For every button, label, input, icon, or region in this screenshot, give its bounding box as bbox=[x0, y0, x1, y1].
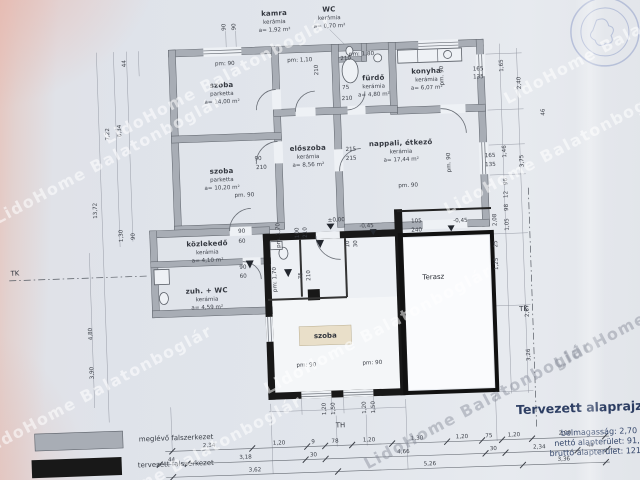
floor-plan-drawing: kamra kerámia a= 1,92 m² WC kerámia a= 0… bbox=[0, 0, 640, 480]
dim: 1,20 bbox=[456, 434, 469, 440]
room-name: szoba bbox=[210, 81, 234, 90]
room-floor: kerámia bbox=[415, 76, 438, 84]
dim: 105 bbox=[411, 218, 422, 224]
room-area: a= 4,10 m² bbox=[192, 256, 224, 264]
dim: 9 bbox=[311, 439, 315, 445]
pm-label: pm. 90 bbox=[446, 152, 453, 172]
dim: 3,90 bbox=[89, 366, 95, 379]
dim: 90 bbox=[239, 265, 247, 271]
dim: 75 bbox=[342, 85, 350, 91]
dim: 3,18 bbox=[239, 455, 252, 461]
dim: 1,50 bbox=[331, 402, 337, 415]
dim: 1,20 bbox=[363, 437, 376, 443]
dim: 98 bbox=[504, 203, 510, 211]
dim: 210 bbox=[340, 56, 351, 62]
dim: 4,66 bbox=[397, 449, 410, 455]
tk-marker: TK bbox=[518, 305, 528, 313]
room-name: közlekedő bbox=[186, 238, 228, 248]
bottom-chain-labels: 2,34 1,20 9 78 1,20 1,30 1,20 75 1,20 2,… bbox=[167, 430, 594, 477]
dim: 3,75 bbox=[519, 154, 525, 167]
dim: 1,30 bbox=[411, 436, 424, 442]
dim: 96 bbox=[503, 177, 509, 185]
room-interiors bbox=[270, 233, 494, 395]
room-name-highlighted: szoba bbox=[314, 331, 337, 340]
room-area: a= 0,70 m² bbox=[314, 22, 346, 30]
dim: 90 bbox=[238, 229, 246, 235]
pm-label: pm. 90 bbox=[398, 183, 418, 190]
room-name: előszoba bbox=[289, 143, 326, 153]
level-marker-label: -0,45 bbox=[359, 223, 374, 230]
dim: 1,05 bbox=[504, 218, 510, 231]
dim: 165 bbox=[473, 66, 484, 72]
pm-label: pm: 1,10 bbox=[287, 57, 313, 64]
dim: 210 bbox=[303, 227, 309, 238]
legend-label: tervezett falszerkezet bbox=[138, 459, 215, 470]
dim: 46 bbox=[541, 108, 547, 116]
drawing-title: Tervezett alaprajz M=1:1 bbox=[516, 396, 640, 417]
dim: 1,25 bbox=[494, 257, 500, 270]
th-marker: TH bbox=[335, 421, 346, 429]
right-dimension-column: 1,65 2,40 3,75 1,46 96 12 98 1,05 2,67 3… bbox=[487, 57, 556, 362]
dim: 13,72 bbox=[93, 203, 100, 219]
dim: 90 bbox=[221, 23, 227, 31]
pm-label: pm: 90 bbox=[296, 362, 316, 369]
room-name: konyha bbox=[411, 67, 441, 76]
dim: 135 bbox=[485, 162, 496, 168]
dim: 2,34 bbox=[203, 443, 216, 449]
dim: 75 bbox=[485, 433, 493, 439]
dim: 135 bbox=[473, 74, 484, 80]
room-area: a= 6,07 m² bbox=[411, 84, 443, 92]
dim: 30 bbox=[310, 452, 318, 458]
pm-label: pm: 90 bbox=[215, 61, 235, 68]
room-name: fürdő bbox=[362, 73, 385, 83]
dim: 10 bbox=[345, 240, 351, 248]
dim: 1,30 bbox=[119, 229, 125, 242]
dim: 1,20 bbox=[508, 432, 521, 438]
room-floor: kerámia bbox=[297, 153, 320, 161]
room-floor: kerámia bbox=[318, 14, 341, 22]
dim: 215 bbox=[345, 147, 356, 153]
room-area: a= 10,20 m² bbox=[204, 184, 240, 192]
room-name: nappali, étkező bbox=[369, 137, 433, 148]
room-floor: kerámia bbox=[196, 249, 219, 257]
level-marker-label: ±0,00 bbox=[328, 217, 346, 224]
dim: 210 bbox=[306, 270, 312, 281]
dim: 1,46 bbox=[502, 145, 508, 158]
level-marker-label: -0,45 bbox=[453, 218, 468, 225]
room-area: a= 1,92 m² bbox=[259, 26, 291, 34]
room-floor: kerámia bbox=[263, 18, 286, 26]
dim: 4,80 bbox=[88, 327, 94, 340]
dim: 1,65 bbox=[499, 59, 505, 72]
dim: 30 bbox=[353, 240, 359, 248]
dim: 215 bbox=[346, 156, 357, 162]
legend-label: meglévő falszerkezet bbox=[139, 432, 214, 444]
dim: 90 bbox=[231, 23, 237, 31]
tk-marker: TK bbox=[10, 269, 20, 277]
legend-swatch-existing bbox=[35, 431, 124, 451]
dim: 6,34 bbox=[117, 124, 123, 137]
room-name: zuh. + WC bbox=[186, 286, 228, 295]
room-area: a= 4,59 m² bbox=[191, 303, 223, 311]
dim: 5,26 bbox=[424, 461, 437, 467]
pm-label: pm. 90 bbox=[234, 192, 254, 199]
dim: 60 bbox=[238, 239, 246, 245]
dim: 1,20 bbox=[273, 440, 286, 446]
dim: 2,40 bbox=[516, 76, 522, 89]
dim: 210 bbox=[256, 165, 267, 171]
pm-label: pm: 1,70 bbox=[272, 266, 279, 292]
room-name: kamra bbox=[261, 9, 287, 18]
dim: 1,20 bbox=[322, 402, 328, 415]
scanned-floor-plan-photo: kamra kerámia a= 1,92 m² WC kerámia a= 0… bbox=[0, 0, 640, 480]
dim: 90 bbox=[254, 156, 262, 162]
pm-label: pm: 90 bbox=[362, 360, 382, 367]
room-floor: parketta bbox=[210, 177, 234, 184]
dim: 78 bbox=[331, 438, 339, 444]
dim: 210 bbox=[314, 64, 320, 75]
dim: 3,62 bbox=[249, 467, 262, 473]
dim: 2,34 bbox=[533, 444, 546, 450]
dim: 3,26 bbox=[526, 348, 532, 361]
room-area: a= 4,80 m² bbox=[358, 90, 390, 98]
pm-label: pm. 1,70 bbox=[275, 222, 282, 248]
room-area: a= 8,56 m² bbox=[292, 161, 324, 169]
dim: 7,22 bbox=[105, 128, 111, 141]
dim: 165 bbox=[485, 153, 496, 159]
dim: 100 bbox=[295, 227, 301, 238]
dim: 2,08 bbox=[492, 213, 498, 226]
room-area: a= 17,44 m² bbox=[383, 156, 419, 164]
dim: 75 bbox=[298, 272, 304, 280]
room-name: WC bbox=[322, 5, 336, 13]
dim: 30 bbox=[490, 446, 498, 452]
dim: 25 bbox=[493, 240, 499, 248]
dim: 12 bbox=[503, 191, 509, 198]
pm-label: pm: 1,80 bbox=[349, 51, 375, 58]
legend: meglévő falszerkezet tervezett falszerke… bbox=[29, 428, 216, 480]
room-floor: kerámia bbox=[196, 296, 219, 304]
room-name: szoba bbox=[210, 167, 234, 176]
room-floor: kerámia bbox=[362, 83, 385, 91]
dim: 1,50 bbox=[371, 400, 377, 413]
room-name-terasz: Terasz bbox=[421, 273, 444, 282]
dim: 44 bbox=[122, 60, 128, 68]
dim: 1,20 bbox=[362, 401, 368, 414]
dim: 60 bbox=[240, 274, 248, 280]
room-floor: kerámia bbox=[390, 148, 413, 156]
round-stamp bbox=[570, 0, 640, 67]
legend-swatch-planned bbox=[32, 457, 123, 478]
room-floor: parketta bbox=[210, 91, 234, 98]
dim: 210 bbox=[342, 96, 353, 102]
room-area: a= 14,00 m² bbox=[204, 98, 240, 106]
pm-label: pm. 90 bbox=[439, 65, 446, 85]
dim: 90 bbox=[131, 232, 137, 240]
dim: 240 bbox=[411, 227, 422, 233]
